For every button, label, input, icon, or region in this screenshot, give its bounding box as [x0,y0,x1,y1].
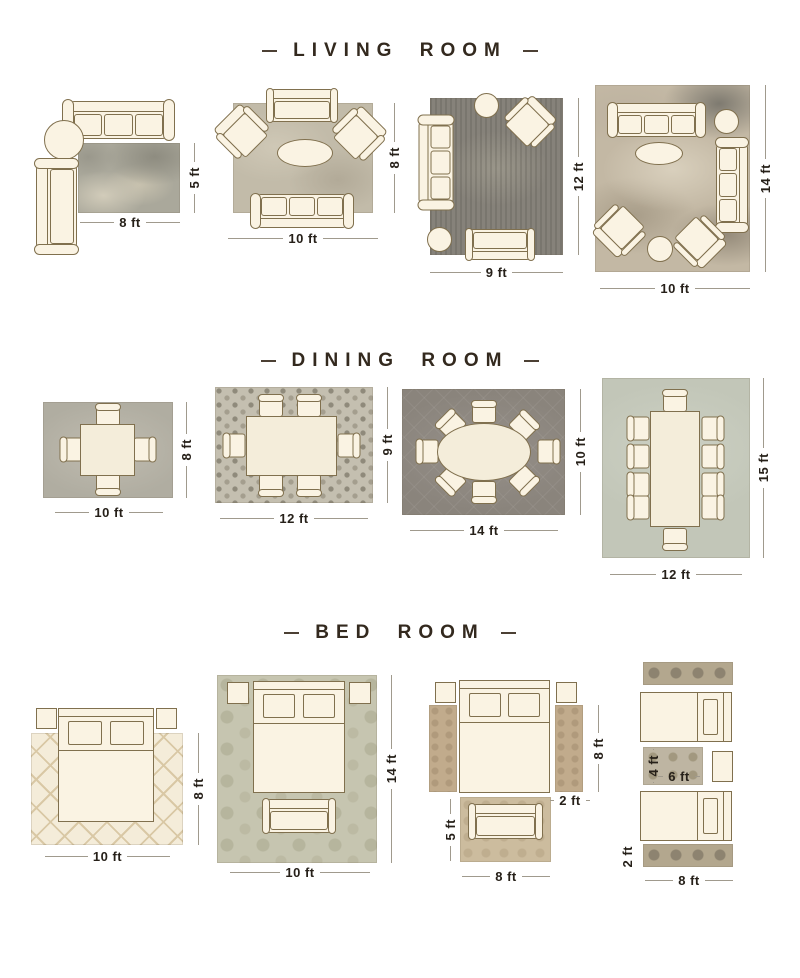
runner-height-dimension: 2 ft [619,841,635,871]
dimension-line [512,272,563,273]
sofa-arm [468,803,476,841]
sofa-arm [343,193,354,230]
seat-cushion [431,176,451,200]
dimension-text: 12 ft [279,512,308,525]
dimension-line [763,378,764,448]
round-side-table [714,109,739,134]
dimension-line [695,776,700,777]
dining-chair [259,474,283,493]
dimension-text: 8 ft [592,738,605,760]
dimension-text: 9 ft [486,266,508,279]
sofa-arm [262,798,270,835]
sofa-body [271,89,333,122]
sofa-three-seat [716,137,748,233]
sofa-three-seat [607,103,706,137]
nightstand [36,708,57,729]
dining-chair [338,434,357,458]
seat-cushion [104,114,132,136]
sofa-back [72,102,164,112]
dimension-text: 2 ft [621,846,634,868]
dimension-line [55,512,89,513]
dimension-text: 12 ft [661,568,690,581]
rug-height-dimension: 8 ft [190,733,206,845]
dimension-line [765,198,766,272]
dimension-line [228,238,283,239]
title-dash-right [501,632,516,634]
dimension-text: 5 ft [444,819,457,841]
dimension-line [653,749,654,750]
dimension-line [194,194,195,213]
dining-chair [702,445,721,469]
dimension-line [314,518,368,519]
rug-height-dimension: 14 ft [383,675,399,863]
rug-width-dimension: 12 ft [220,512,368,525]
runner-width-dimension: 8 ft [645,874,733,887]
pillow [703,699,718,735]
dimension-text: 8 ft [180,439,193,461]
dining-chair [702,496,721,520]
dimension-line [430,272,481,273]
dining-chair [134,438,153,462]
headboard [59,709,153,717]
round-side-table [647,236,673,262]
seat-cushion [261,197,287,216]
dimension-text: 14 ft [469,524,498,537]
sofa-three-seat [250,194,354,228]
oval-coffee-table [635,142,683,165]
dimension-line [394,174,395,213]
rug-width-dimension: 12 ft [610,568,742,581]
sofa-arm [695,102,706,139]
sofa-arm [527,228,535,261]
dimension-line [387,387,388,429]
dimension-text: 2 ft [559,794,581,807]
seat-cushion [671,115,695,134]
headboard [723,693,731,741]
dimension-line [645,880,673,881]
bed [253,681,345,793]
foot-bench [262,799,336,833]
sofa-arm [163,99,175,140]
twin-bed [640,791,732,841]
sofa-body [36,166,77,248]
dimension-line [394,103,395,142]
nightstand [156,708,177,729]
dimension-line [765,85,766,159]
headboard [254,682,344,690]
sofa-back [420,123,429,202]
mattress [59,750,153,821]
dimension-line [450,799,451,814]
sofa-arm [465,228,473,261]
dimension-line [45,856,88,857]
pillow [110,721,144,745]
chaise-sofa [36,158,77,255]
oval-dining-table [437,423,531,481]
bedside-runner-rug [429,705,457,792]
dimension-text: 15 ft [757,453,770,482]
sofa-arm [34,244,78,255]
dimension-line [598,705,599,733]
dimension-line [410,530,464,531]
sofa-back [471,251,530,259]
sofa-body [258,194,345,228]
mattress [254,723,344,792]
sofa-loveseat [266,89,338,122]
pillow [68,721,102,745]
seat-cushion [135,114,163,136]
nightstand [556,682,577,703]
rug-width-dimension: 14 ft [410,524,558,537]
rug-height-dimension: 15 ft [755,378,771,558]
bed [58,708,154,822]
dimension-line [230,872,280,873]
dining-chair [702,417,721,441]
dimension-line [391,789,392,863]
dimension-line [186,402,187,434]
rug-height-dimension: 14 ft [757,85,773,272]
sofa-arm [250,193,261,230]
dining-chair [227,434,246,458]
sofa-arm [607,102,618,139]
dimension-line [653,782,654,783]
dimension-line [323,238,378,239]
sofa-back [739,146,747,225]
dining-chair [297,474,321,493]
headboard [460,681,549,689]
dimension-line [186,466,187,498]
seat-cushion [473,232,528,249]
runner-rug [643,662,733,685]
dimension-line [705,880,733,881]
rug-width-dimension: 10 ft [230,866,370,879]
sofa-body [716,145,748,226]
dimension-text: 10 ft [574,437,587,466]
seat-cushion [431,125,451,149]
pillow [508,693,540,717]
dimension-line [127,856,170,857]
dining-chair [631,445,650,469]
rug-width-dimension: 10 ft [45,850,170,863]
sofa-body [473,804,538,839]
oval-coffee-table [277,139,333,167]
dining-table [80,424,135,476]
dimension-line [600,288,655,289]
sofa-arm [34,158,78,169]
rug-width-dimension: 8 ft [80,216,180,229]
rug-width-dimension: 10 ft [228,232,378,245]
mattress [460,722,549,792]
dimension-line [696,574,742,575]
runner-rug [643,844,733,867]
nightstand [712,751,733,782]
dimension-line [320,872,370,873]
dimension-line [658,776,663,777]
dining-table [246,416,337,476]
sofa-arm [535,803,543,841]
sofa-arm [328,798,336,835]
seat-cushion [289,197,315,216]
dimension-text: 10 ft [94,506,123,519]
title-dash-left [284,632,299,634]
dimension-line [129,512,163,513]
dimension-line [610,574,656,575]
sofa-back [268,800,330,809]
sofa-body [419,122,454,203]
foot-bench [468,804,543,839]
mattress [641,792,698,840]
bedside-runner-rug [555,705,583,792]
round-side-table [474,93,499,118]
seat-cushion [644,115,668,134]
rug-height-dimension: 8 ft [386,103,402,213]
dining-chair [631,473,650,497]
section-title-bed-room: BED ROOM [0,622,800,644]
sofa-back [259,218,344,227]
dimension-text: 8 ft [678,874,700,887]
dimension-line [391,675,392,749]
pillow [303,694,335,718]
sofa-arm [715,137,750,148]
runner-height-dimension: 8 ft [590,705,606,792]
dimension-line [450,846,451,861]
dimension-line [146,222,180,223]
rug-height-dimension: 10 ft [572,389,588,515]
dimension-line [695,288,750,289]
dimension-line [462,876,490,877]
dimension-text: 5 ft [188,167,201,189]
dining-chair [631,417,650,441]
dimension-text: 8 ft [388,147,401,169]
headboard [723,792,731,840]
dining-chair [663,528,687,547]
rug-width-dimension: 9 ft [430,266,563,279]
foot-rug-width-dimension: 8 ft [462,870,550,883]
dimension-text: 9 ft [381,434,394,456]
seat-cushion [719,199,737,223]
dimension-text: 12 ft [572,162,585,191]
runner-width-dimension: 2 ft [550,794,590,807]
dimension-line [580,472,581,515]
seat-cushion [719,148,737,172]
dining-chair [538,440,557,464]
seat-cushion [317,197,343,216]
nightstand [435,682,456,703]
sofa-back [616,104,697,113]
seat-cushion [50,169,74,245]
dining-chair [631,496,650,520]
bed [459,680,550,793]
sofa-arm [417,115,455,126]
dimension-text: 8 ft [495,870,517,883]
sofa-three-seat [419,115,454,211]
rug-size-guide-infographic: LIVING ROOM 8 ft 5 ft 10 ft 8 ft 9 ft 12… [0,0,800,978]
sofa-arm [330,88,338,124]
sofa-arm [266,88,274,124]
dimension-text: 14 ft [759,164,772,193]
dimension-text: 8 ft [192,778,205,800]
dining-chair [472,481,496,500]
rug-height-dimension: 5 ft [186,143,202,213]
dimension-line [598,764,599,792]
dimension-line [578,196,579,255]
seat-cushion [719,173,737,197]
dimension-line [387,461,388,503]
dimension-line [80,222,114,223]
dimension-line [504,530,558,531]
sofa-back [474,805,537,814]
dimension-text: 10 ft [660,282,689,295]
sofa-body [615,103,698,137]
dining-chair [259,398,283,417]
dimension-text: 10 ft [288,232,317,245]
dimension-line [578,98,579,157]
seat-cushion [270,811,328,830]
seat-cushion [274,101,330,119]
accent-rug-width-dimension: 6 ft [658,770,700,783]
rug-height-dimension: 8 ft [178,402,194,498]
rug-width-dimension: 10 ft [55,506,163,519]
dimension-text: 6 ft [668,770,690,783]
pillow [263,694,295,718]
sofa-arm [417,200,455,211]
dimension-line [586,800,590,801]
section-title-text: BED ROOM [315,622,485,644]
dimension-line [580,389,581,432]
dining-chair [297,398,321,417]
dimension-line [550,800,554,801]
dining-chair [420,440,439,464]
sofa-body [470,229,531,260]
dimension-line [198,805,199,845]
twin-bed [640,692,732,742]
round-side-table [427,227,452,252]
sofa-body [71,101,165,139]
mattress [641,693,698,741]
dimension-text: 8 ft [119,216,141,229]
sofa-loveseat [465,229,535,260]
dimension-line [763,488,764,558]
dining-chair [663,393,687,412]
sofa-body [267,799,331,833]
seat-cushion [431,151,451,175]
seat-cushion [476,816,535,836]
dimension-line [522,876,550,877]
seat-cushion [618,115,642,134]
dining-chair [472,404,496,423]
dining-table [650,411,700,527]
dimension-line [220,518,274,519]
foot-rug-height-dimension: 5 ft [442,799,458,861]
dimension-text: 10 ft [285,866,314,879]
dimension-line [194,143,195,162]
pillow [703,798,718,834]
dimension-line [198,733,199,773]
rug-height-dimension: 12 ft [570,98,586,255]
sofa-back [37,167,48,247]
rug-width-dimension: 10 ft [600,282,750,295]
dimension-text: 10 ft [93,850,122,863]
sofa-back [272,90,332,99]
dimension-text: 14 ft [385,754,398,783]
pillow [469,693,501,717]
round-side-table [44,120,84,160]
nightstand [349,682,371,704]
nightstand [227,682,249,704]
dining-chair [702,473,721,497]
rug-height-dimension: 9 ft [379,387,395,503]
